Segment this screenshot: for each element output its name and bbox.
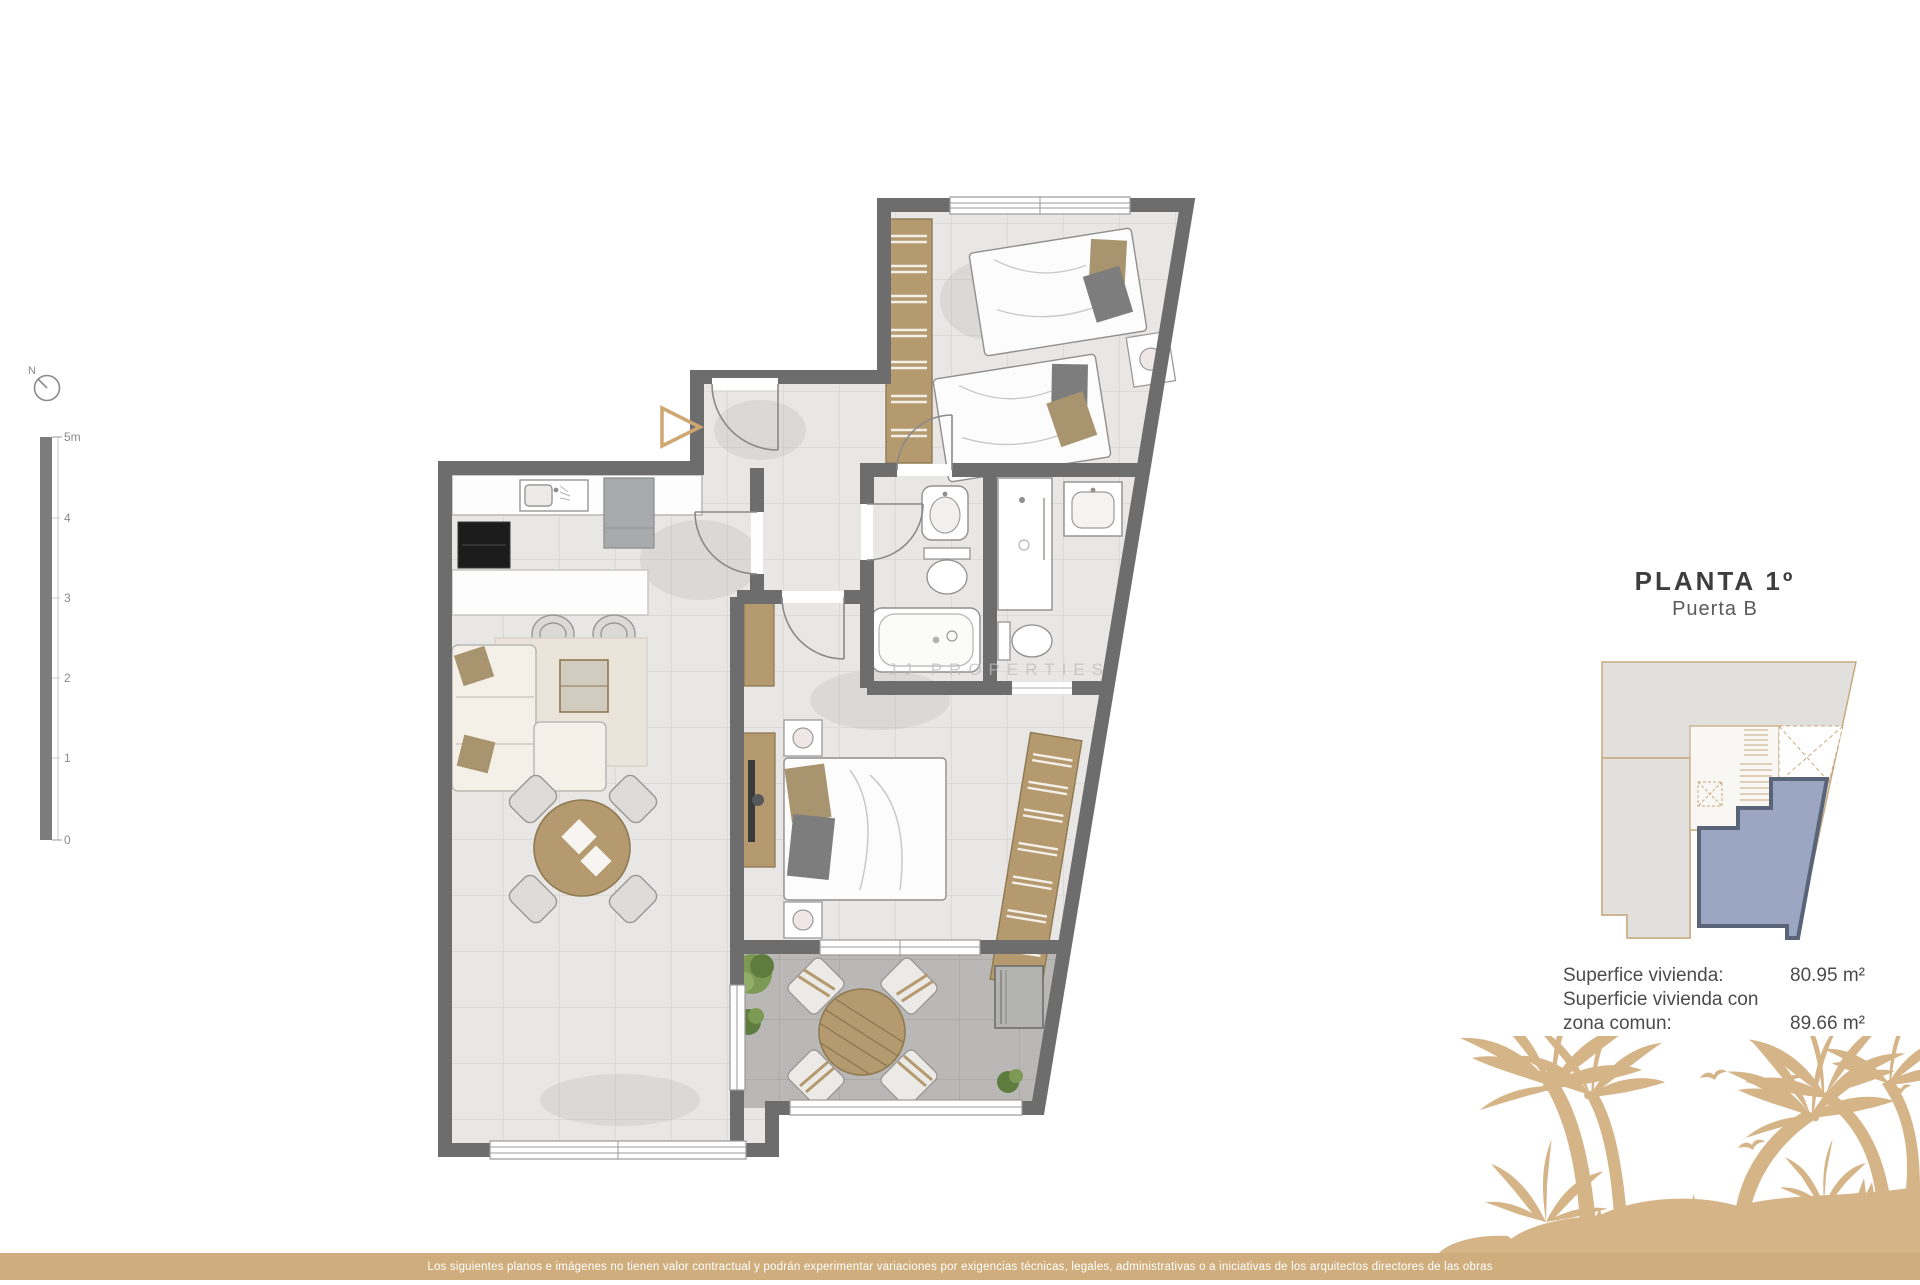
window (950, 197, 1130, 214)
laundry-sink-icon (1064, 482, 1122, 536)
disclaimer-text: Los siguientes planos e imágenes no tien… (427, 1261, 1492, 1273)
nightstand (784, 720, 822, 756)
metric-label: Superfice vivienda: (1563, 964, 1724, 988)
page-subtitle: Puerta B (1565, 598, 1865, 621)
watermark: JJ PROPERTIES (888, 660, 1148, 680)
palm-trees-graphic (1438, 1036, 1920, 1254)
metric-row: Superficie vivienda con zona comun: 89.6… (1563, 988, 1865, 1036)
fridge (604, 478, 654, 548)
page-title: PLANTA 1º (1565, 566, 1865, 597)
toilet-icon (998, 622, 1052, 660)
sliding-door (730, 985, 745, 1090)
shower-icon (998, 478, 1052, 610)
window (490, 1141, 746, 1159)
sideboard (744, 602, 774, 686)
nightstand (784, 902, 822, 938)
surface-metrics: Superfice vivienda: 80.95 m² Superficie … (1563, 964, 1865, 1036)
metric-label: Superficie vivienda con zona comun: (1563, 988, 1758, 1036)
double-bed (784, 758, 946, 900)
terrace-table (819, 989, 905, 1075)
toilet-icon (924, 548, 970, 594)
kitchen-sink-icon (520, 480, 588, 511)
floor-plan: JJ PROPERTIES (0, 0, 1280, 1280)
pillow (787, 814, 835, 880)
ac-unit (995, 966, 1043, 1028)
bathroom-sink-icon (922, 486, 968, 540)
footer-disclaimer-bar: Los siguientes planos e imágenes no tien… (0, 1253, 1920, 1280)
metric-value: 89.66 m² (1790, 1012, 1865, 1036)
bathroom2-opening (1012, 682, 1072, 694)
metric-row: Superfice vivienda: 80.95 m² (1563, 964, 1865, 988)
sliding-door (820, 940, 980, 955)
twin-wardrobe (886, 219, 932, 463)
metric-value: 80.95 m² (1790, 964, 1865, 988)
pillow (784, 763, 831, 822)
tv-console (742, 733, 775, 867)
kitchen-island (452, 570, 648, 615)
key-plan (1590, 650, 1910, 950)
terrace-railing (790, 1100, 1022, 1115)
